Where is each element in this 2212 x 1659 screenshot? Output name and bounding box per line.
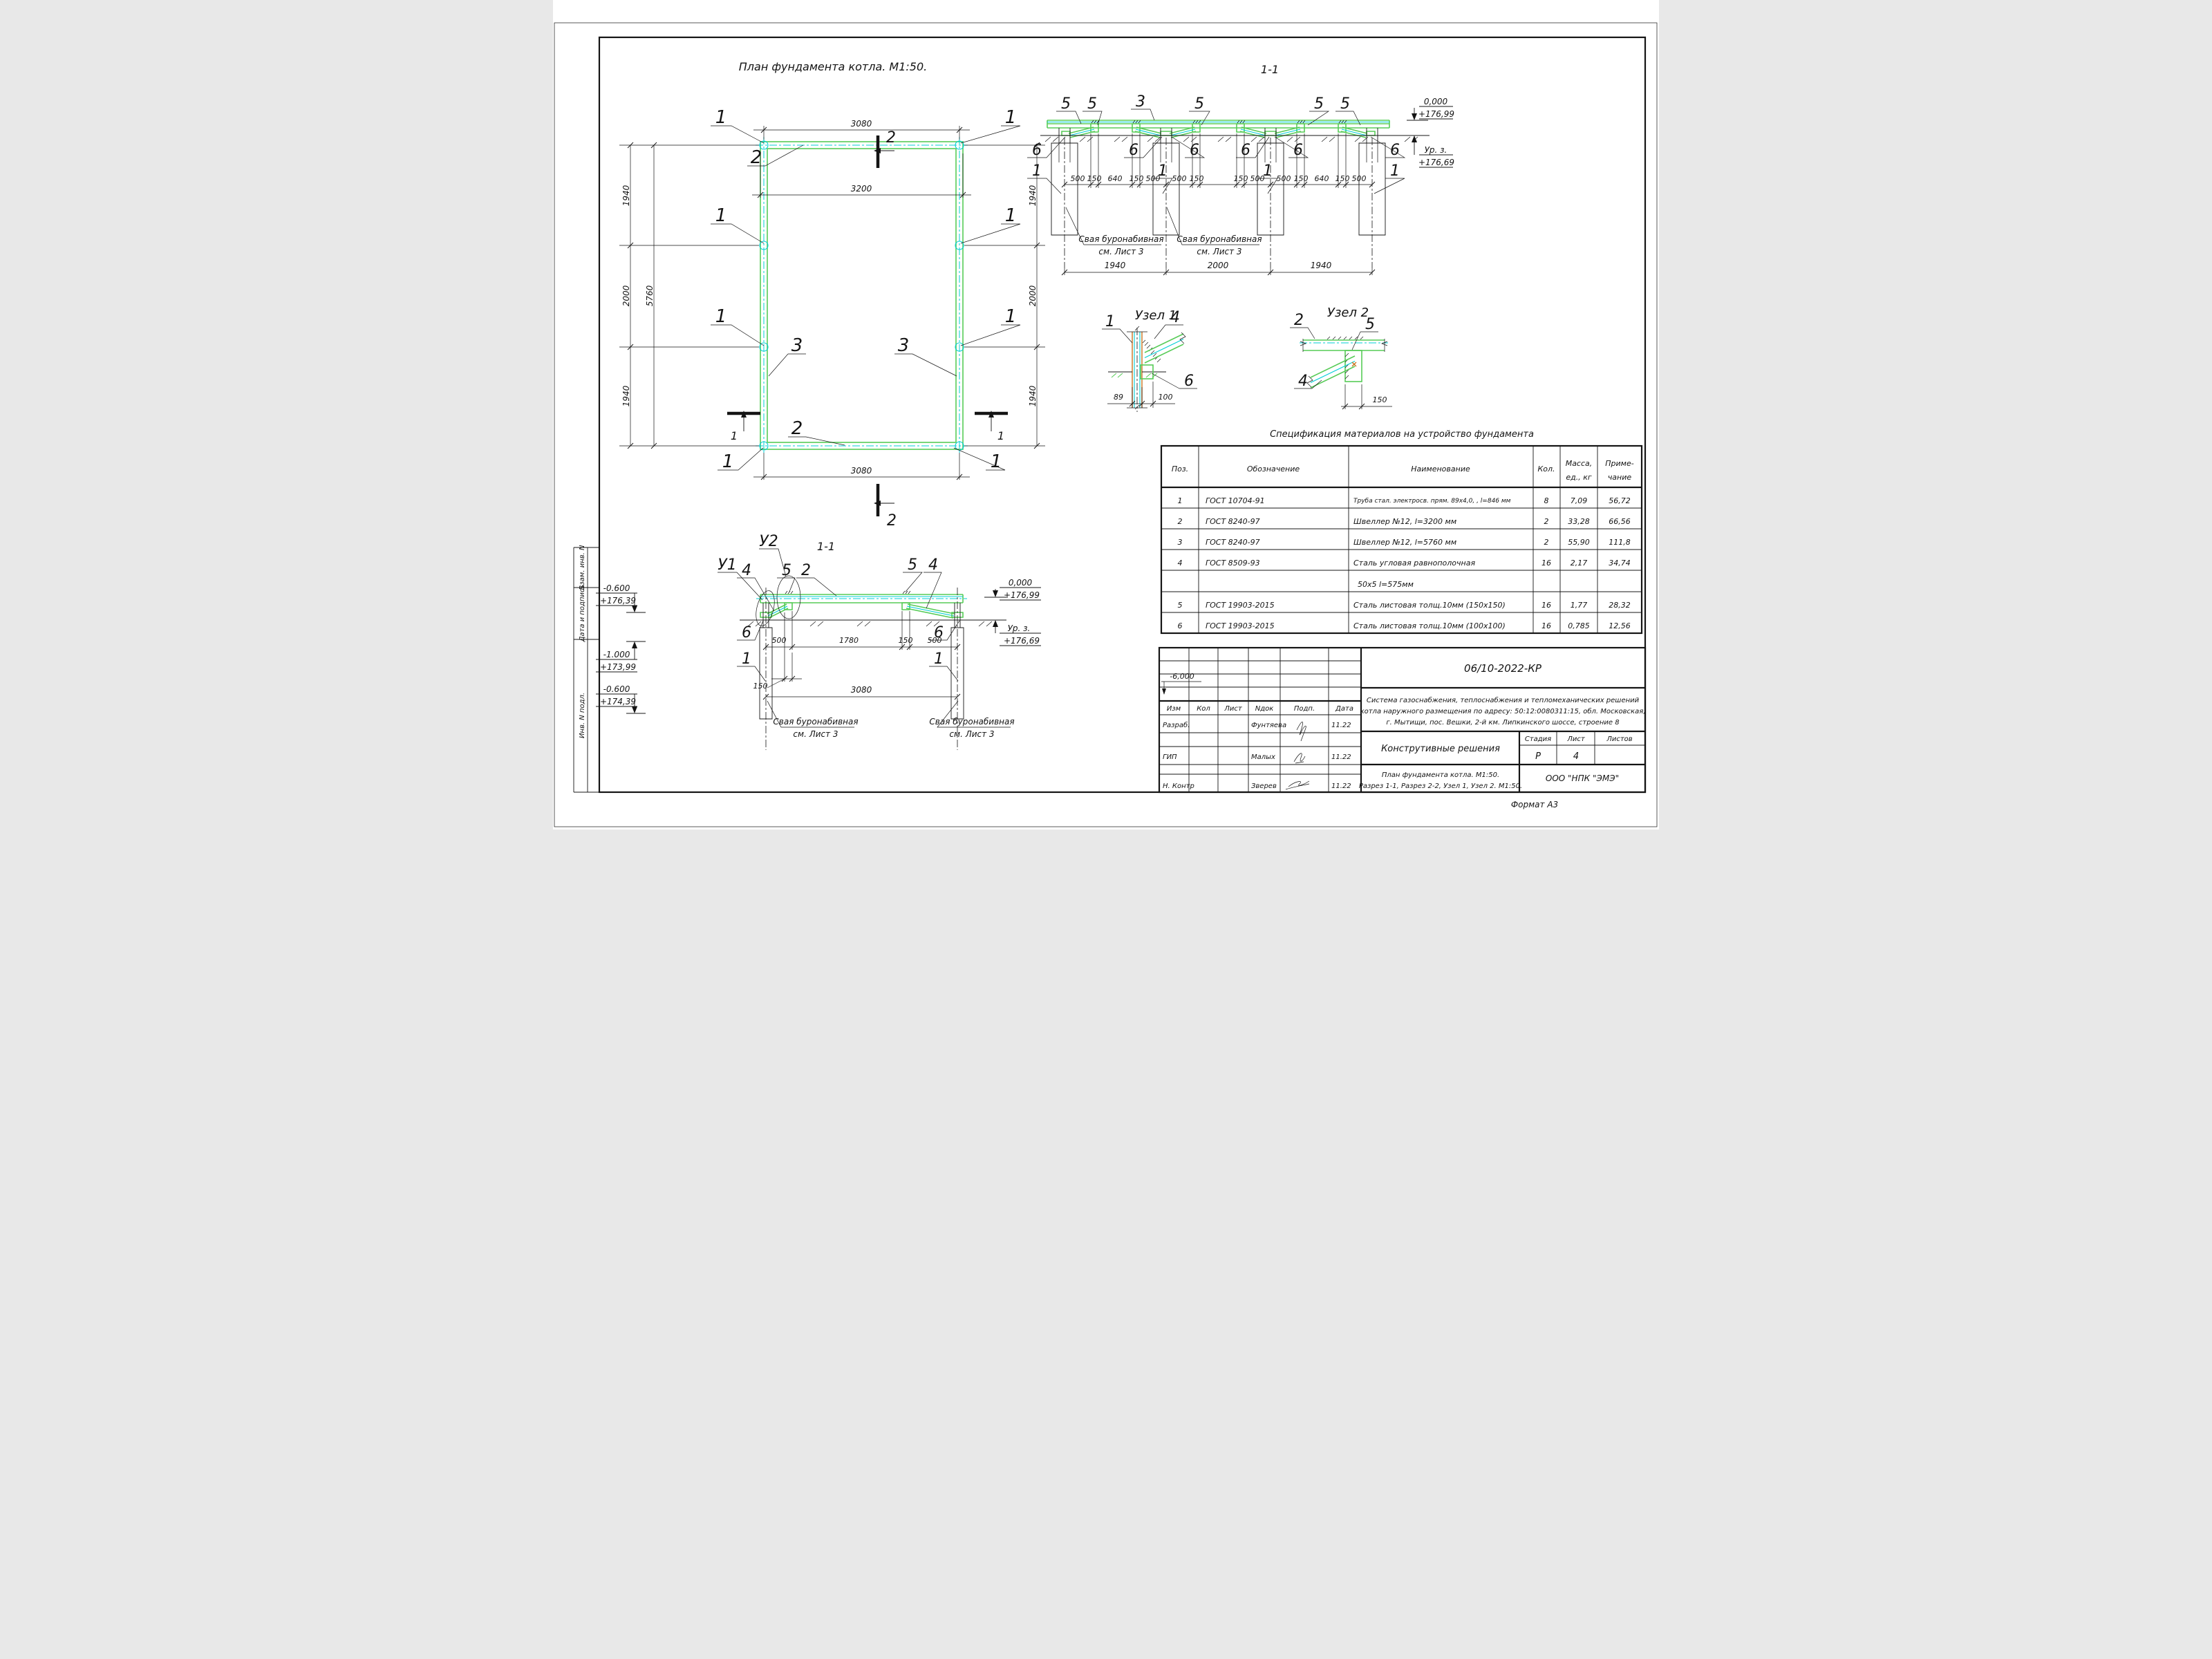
balloon-6: 6 (1032, 142, 1042, 159)
node-1: Узел 1 1 4 6 89 100 (1102, 308, 1197, 412)
col-header: чание (1608, 473, 1632, 482)
balloon-1: 1 (722, 451, 734, 472)
sec1-pile-notes: Свая буронабивная см. Лист 3 Свая бурона… (1066, 207, 1262, 256)
tb-listov-label: Листов (1606, 735, 1632, 743)
tb-list-label: Лист (1566, 735, 1586, 743)
cell: Сталь листовая толщ.10мм (150х150) (1353, 601, 1506, 610)
cell: 2 (1544, 517, 1549, 526)
cell: 5 (1178, 601, 1183, 610)
section-mark-2-top: 2 (886, 129, 896, 147)
tb-col: Дата (1335, 705, 1353, 713)
sec1-elevations: 0,000 +176,99 Ур. з. +176,69 (1407, 97, 1454, 167)
cell: 56,72 (1609, 496, 1631, 505)
col-header: Обозначение (1247, 465, 1300, 474)
plan-dim-bottom: 3080 (851, 466, 872, 476)
signature (1297, 722, 1306, 741)
cell: ГОСТ 8240-97 (1206, 538, 1260, 547)
plan-dim-total: 5760 (645, 285, 655, 306)
cell: ГОСТ 19903-2015 (1206, 621, 1275, 630)
cell: 0,785 (1568, 621, 1590, 630)
sec1-title: 1-1 (1261, 63, 1279, 76)
dim: 500 (772, 636, 787, 645)
tb-name: Фунтяева (1251, 722, 1286, 729)
tb-role: Н. Контр (1163, 782, 1194, 790)
section-mark-2-bottom: 2 (887, 512, 897, 529)
balloon-3: 3 (1136, 93, 1145, 111)
section-mark-1-right: 1 (997, 429, 1004, 442)
col-header: Кол. (1537, 465, 1555, 474)
dim: 1940 (1311, 261, 1332, 270)
balloon-5: 5 (782, 562, 791, 579)
dim: 150 (1234, 174, 1248, 183)
balloon-6: 6 (1129, 142, 1138, 159)
node-2: Узел 2 2 5 4 150 (1290, 306, 1392, 409)
cell: 6 (1178, 621, 1183, 630)
plan-title: План фундамента котла. М1:50. (739, 60, 927, 73)
balloon-1: 1 (1263, 162, 1273, 180)
spec-table: Спецификация материалов на устройство фу… (1161, 429, 1642, 633)
elev-zero: 0,000 (1424, 97, 1448, 106)
balloon-5: 5 (1314, 95, 1324, 113)
col-header: Приме- (1605, 459, 1633, 468)
dim: 150 (899, 636, 913, 645)
dim: 100 (1159, 393, 1173, 402)
signature (1286, 781, 1309, 789)
balloon-4: 4 (928, 556, 938, 574)
cell: Швеллер №12, l=3200 мм (1353, 517, 1456, 526)
col-header: ед., кг (1566, 473, 1592, 482)
tb-col: Nдок (1255, 705, 1274, 713)
tb-col: Подп. (1294, 705, 1315, 713)
node2-plate (1345, 350, 1362, 382)
tb-desc-2: котла наружного размещения по адресу: 50… (1360, 707, 1646, 715)
balloon-5: 5 (1061, 95, 1071, 113)
plan-dim-right-1: 1940 (1028, 185, 1038, 206)
sheet-frame (554, 23, 1657, 827)
drawing-sheet: Взам. инв. N Дата и подпись Инв. N подл.… (553, 0, 1659, 829)
elev: +176,39 (600, 596, 636, 606)
sec1-ground-hatch (1045, 137, 1418, 142)
cell: Труба стал. электросв. прям. 89х4,0, , l… (1353, 498, 1511, 505)
plan-balloons-ch2: 2 2 (747, 145, 845, 445)
sec2-pile-notes: Свая буронабивная см. Лист 3 Свая бурона… (767, 701, 1015, 739)
sec2-dim150-lines (767, 612, 802, 688)
tb-date: 11.22 (1331, 722, 1351, 729)
cell: 34,74 (1609, 559, 1631, 568)
plan-dim-left-1: 1940 (621, 185, 631, 206)
format-note: Формат А3 (1511, 800, 1558, 809)
sec2-node-circle-u2 (777, 576, 800, 619)
balloon-4: 4 (1298, 373, 1308, 390)
elev: -0.600 (603, 684, 630, 694)
signature (1294, 753, 1305, 763)
left-attribute-strip: Взам. инв. N Дата и подпись Инв. N подл. (574, 545, 599, 792)
node2-beam (1303, 340, 1385, 350)
tb-stage-value: Р (1535, 751, 1541, 762)
pile-note-line1: Свая буронабивная (929, 717, 1014, 727)
sec2-plates (785, 603, 910, 610)
sec1-balloons-6: 6 6 6 6 6 6 (1027, 137, 1405, 159)
plan-dim-left-lines (619, 145, 759, 446)
node2-beam-breaks (1300, 339, 1387, 352)
dim: 150 (1190, 174, 1204, 183)
cell: 12,56 (1609, 621, 1631, 630)
elev: -1.000 (603, 650, 630, 659)
balloon-1: 1 (715, 107, 727, 128)
plan-dim-inner: 3200 (851, 184, 872, 194)
balloon-5: 5 (1365, 316, 1375, 333)
dim: 150 (1335, 174, 1350, 183)
elev-zero-abs: +176,99 (1418, 109, 1454, 119)
tb-sheet-name-1: План фундамента котла. М1:50. (1382, 771, 1499, 779)
cell: ГОСТ 10704-91 (1206, 496, 1265, 505)
pile-note-line2: см. Лист 3 (793, 729, 838, 739)
plan-dim-top: 3080 (851, 119, 872, 129)
balloon-1: 1 (1005, 306, 1017, 327)
balloon-1: 1 (1390, 162, 1400, 180)
balloon-2: 2 (751, 147, 762, 168)
balloon-1: 1 (991, 451, 1002, 472)
pile-note-line2: см. Лист 3 (1098, 247, 1143, 256)
balloon-5: 5 (1340, 95, 1350, 113)
sec2-braces (767, 604, 955, 618)
tb-artifact-elevation: -6,000 (1161, 672, 1201, 695)
node1-brace-break (1180, 332, 1185, 344)
balloon-1: 1 (934, 650, 944, 668)
balloon-6: 6 (742, 624, 751, 641)
cell: 28,32 (1609, 601, 1631, 610)
spec-title: Спецификация материалов на устройство фу… (1270, 429, 1534, 440)
node2-weld-mark (1352, 362, 1356, 366)
balloon-6: 6 (1241, 142, 1250, 159)
tb-date: 11.22 (1331, 753, 1351, 761)
cell: 7,09 (1571, 496, 1588, 505)
dim: 640 (1108, 174, 1123, 183)
balloon-6: 6 (1190, 142, 1199, 159)
balloon-5: 5 (1194, 95, 1204, 113)
balloon-1: 1 (1005, 107, 1017, 128)
cell: Сталь листовая толщ.10мм (100х100) (1353, 621, 1506, 630)
section-1-1-top: 1-1 500 150 640 (1027, 63, 1454, 275)
tb-name: Малых (1251, 753, 1275, 761)
balloon-5: 5 (1087, 95, 1097, 113)
elev-ground-abs: +176,69 (1418, 158, 1454, 167)
tb-col: Изм (1167, 705, 1181, 713)
plan-balloons-ch3: 3 3 (769, 335, 957, 376)
elev: +174,39 (600, 697, 636, 706)
sec2-title: 1-1 (817, 540, 835, 553)
node1-brace-core (1145, 339, 1183, 358)
balloon-1: 1 (715, 205, 727, 226)
dim: 89 (1114, 393, 1123, 402)
sec2-elevations-left: -0.600 +176,39 -1.000 +173,99 -0.600 +17… (596, 583, 646, 713)
balloon-1: 1 (1105, 313, 1115, 330)
cell: 1 (1178, 496, 1183, 505)
cell: 2,17 (1571, 559, 1588, 568)
balloon-3: 3 (898, 335, 910, 356)
cell: 55,90 (1568, 538, 1590, 547)
balloon-4: 4 (1170, 309, 1180, 326)
spec-header: Поз. Обозначение Наименование Кол. Масса… (1172, 459, 1634, 482)
pile-note-line1: Свая буронабивная (773, 717, 858, 727)
dim: 150 (1130, 174, 1144, 183)
node2-brace-core (1311, 362, 1355, 383)
tb-name: Зверев (1251, 782, 1277, 790)
cell: 4 (1178, 559, 1183, 568)
tb-stage-label: Стадия (1525, 735, 1551, 743)
cell: ГОСТ 19903-2015 (1206, 601, 1275, 610)
dim: 640 (1315, 174, 1329, 183)
tb-col: Лист (1224, 705, 1243, 713)
cell: 1,77 (1571, 601, 1588, 610)
dim: 500 (928, 636, 942, 645)
dim: 1940 (1105, 261, 1126, 270)
col-header: Наименование (1411, 465, 1470, 474)
dim: 500 (1352, 174, 1367, 183)
plan-dim-left-3: 1940 (621, 385, 631, 406)
balloon-4: 4 (742, 562, 751, 579)
tb-col: Кол (1197, 705, 1210, 713)
node2-brace-break (1307, 376, 1313, 387)
artifact-elev: -6,000 (1170, 672, 1194, 681)
dim: 150 (1087, 174, 1102, 183)
elev-ground: Ур. з. (1425, 145, 1447, 155)
tb-desc-3: г. Мытищи, пос. Вешки, 2-й км. Липкинско… (1386, 719, 1619, 727)
balloon-2: 2 (791, 418, 803, 439)
cell: 33,28 (1568, 517, 1590, 526)
dim: 150 (1373, 395, 1387, 404)
balloon-3: 3 (791, 335, 803, 356)
col-header: Масса, (1566, 459, 1593, 468)
elev: +173,99 (600, 662, 636, 672)
dim: 1780 (839, 636, 859, 645)
dim: 500 (1277, 174, 1291, 183)
cell: 50х5 l=575мм (1358, 580, 1414, 589)
strip-label-inv: Инв. N подл. (579, 693, 586, 738)
cell: 8 (1544, 496, 1549, 505)
elev: Ур. з. (1008, 624, 1031, 633)
cell: 16 (1541, 601, 1551, 610)
cell: 16 (1541, 559, 1551, 568)
dim: 500 (1071, 174, 1085, 183)
strip-label-data: Дата и подпись (579, 585, 586, 643)
balloon-6: 6 (1293, 142, 1303, 159)
balloon-2: 2 (1294, 312, 1304, 329)
dim: 150 (1294, 174, 1309, 183)
balloon-6: 6 (1184, 373, 1194, 390)
sec2-elevations-right: 0,000 +176,99 Ур. з. +176,69 (984, 578, 1041, 646)
elev: -0.600 (603, 583, 630, 593)
pile-note-line1: Свая буронабивная (1078, 234, 1163, 244)
dim: 500 (1172, 174, 1187, 183)
cell: 3 (1178, 538, 1183, 547)
balloon-6: 6 (1390, 142, 1400, 159)
tb-role: ГИП (1163, 753, 1177, 761)
plan-dim-left-2: 2000 (621, 285, 631, 306)
dim: 2000 (1208, 261, 1229, 270)
balloon-5: 5 (908, 556, 917, 574)
elev: 0,000 (1009, 578, 1033, 588)
cell: 16 (1541, 621, 1551, 630)
balloon-1: 1 (715, 306, 727, 327)
plan-dim-right-3: 1940 (1028, 385, 1038, 406)
section-mark-1-left: 1 (731, 429, 738, 442)
title-block: -6,000 Изм Кол Лист Nдок Подп. Дата Разр… (1159, 648, 1645, 792)
cell: ГОСТ 8509-93 (1206, 559, 1260, 568)
cell: 2 (1178, 517, 1183, 526)
sec1-braces (1069, 127, 1367, 138)
balloon-1: 1 (1032, 162, 1042, 180)
section-1-1-bottom: 1-1 У1 4 У2 5 2 5 (596, 533, 1041, 750)
elev: +176,99 (1004, 590, 1040, 600)
cell: 2 (1544, 538, 1549, 547)
spec-rows: 1 ГОСТ 10704-91 Труба стал. электросв. п… (1178, 496, 1631, 630)
dim: 3080 (851, 685, 872, 695)
plan-dim-right-2: 2000 (1028, 285, 1038, 306)
balloon-u1: У1 (718, 556, 736, 574)
strip-label-vzam: Взам. инв. N (579, 545, 586, 590)
cell: 66,56 (1609, 517, 1631, 526)
plan-view: План фундамента котла. М1:50. 3080 3200 … (619, 60, 1045, 529)
tb-company: ООО "НПК "ЭМЭ" (1546, 774, 1619, 783)
tb-desc-1: Система газоснабжения, теплоснабжения и … (1367, 696, 1640, 704)
tb-role: Разраб. (1163, 721, 1190, 729)
cell: Швеллер №12, l=5760 мм (1353, 538, 1456, 547)
outer-border (554, 23, 1657, 827)
tb-doc-name: Конструтивные решения (1381, 744, 1500, 754)
cell: Сталь угловая равнополочная (1353, 559, 1475, 568)
col-header: Поз. (1172, 465, 1188, 474)
sec2-plate-welds (785, 591, 910, 594)
dim: 150 (753, 682, 768, 691)
elev: +176,69 (1004, 636, 1040, 646)
sec1-dim1-labels: 500 150 640 150 500 500 150 150 500 500 … (1071, 174, 1367, 183)
tb-date: 11.22 (1331, 782, 1351, 790)
cad-canvas: Взам. инв. N Дата и подпись Инв. N подл.… (553, 0, 1659, 829)
strip-grid (574, 547, 599, 792)
balloon-1: 1 (1005, 205, 1017, 226)
balloon-1: 1 (1158, 162, 1168, 180)
pile-note-line1: Свая буронабивная (1177, 234, 1262, 244)
node2-title: Узел 2 (1327, 306, 1369, 320)
balloon-1: 1 (742, 650, 751, 668)
sec1-pads (1062, 131, 1375, 135)
tb-list-value: 4 (1573, 751, 1579, 762)
cell: 111,8 (1609, 538, 1631, 547)
cell: ГОСТ 8240-97 (1206, 517, 1260, 526)
balloon-u2: У2 (759, 533, 778, 550)
pile-note-line2: см. Лист 3 (949, 729, 994, 739)
tb-doc-number: 06/10-2022-КР (1464, 662, 1542, 675)
tb-sheet-name-2: Разрез 1-1, Разрез 2-2, Узел 1, Узел 2. … (1359, 782, 1522, 790)
pile-note-line2: см. Лист 3 (1197, 247, 1241, 256)
balloon-2: 2 (801, 562, 811, 579)
